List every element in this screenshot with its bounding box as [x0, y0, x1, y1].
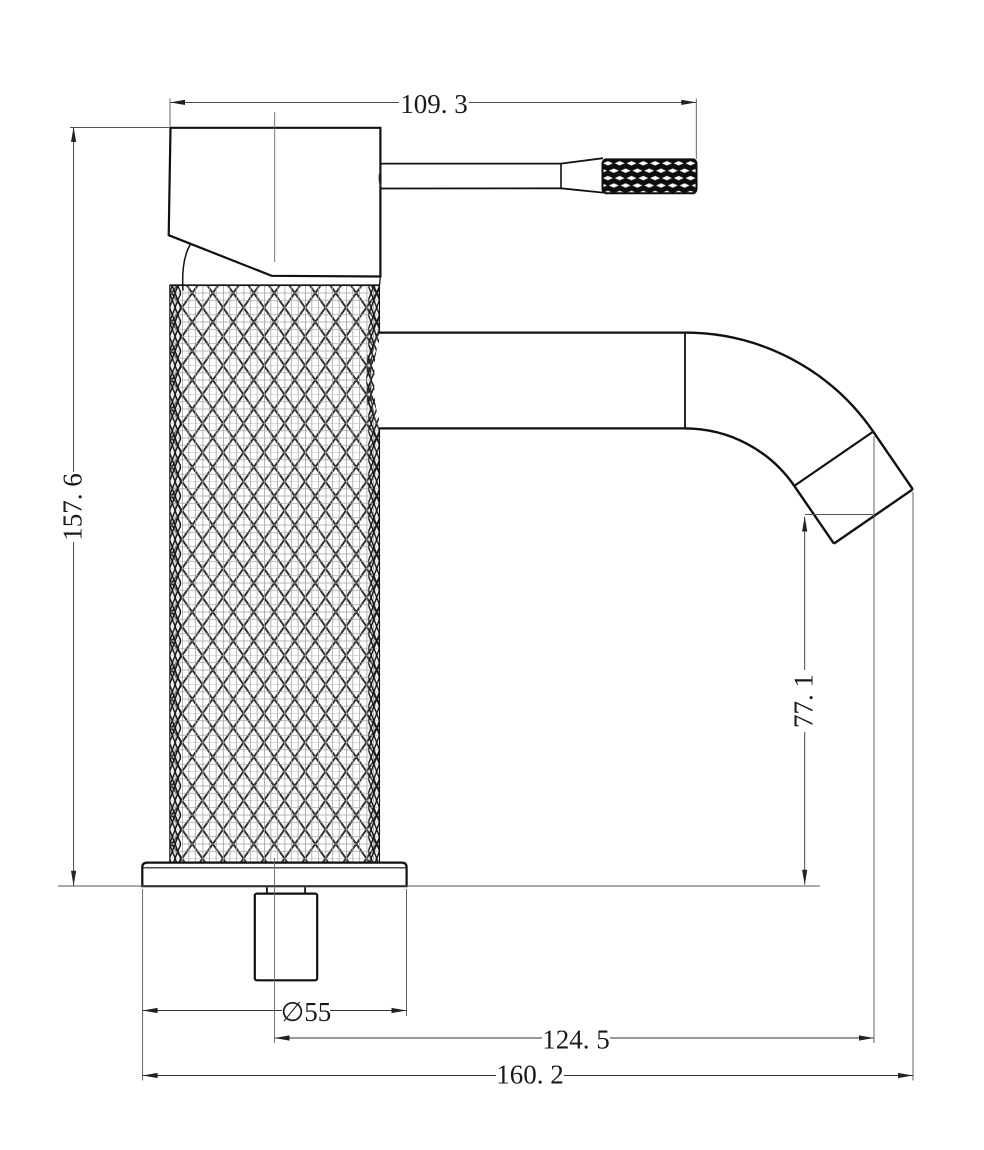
svg-text:160. 2: 160. 2 [496, 1060, 564, 1090]
svg-text:109. 3: 109. 3 [400, 89, 468, 119]
svg-text:157. 6: 157. 6 [58, 473, 88, 541]
svg-text:∅55: ∅55 [281, 997, 332, 1027]
svg-text:124. 5: 124. 5 [542, 1025, 610, 1055]
svg-text:77. 1: 77. 1 [789, 674, 819, 728]
